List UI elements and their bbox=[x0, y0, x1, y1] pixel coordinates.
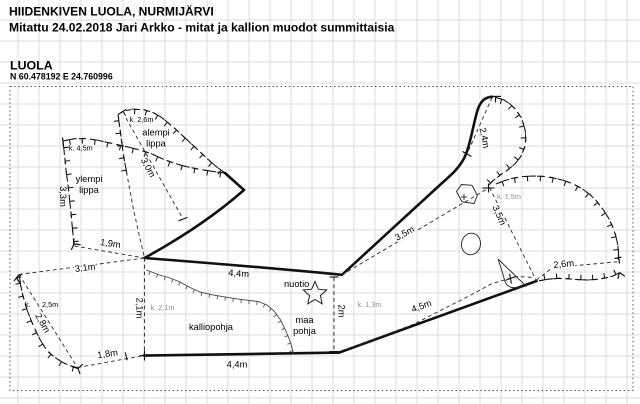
svg-text:alempi: alempi bbox=[142, 127, 169, 137]
svg-text:lippa: lippa bbox=[79, 185, 99, 195]
svg-text:nuotio: nuotio bbox=[284, 279, 309, 289]
svg-text:HIIDENKIVEN LUOLA, NURMIJÄRVI: HIIDENKIVEN LUOLA, NURMIJÄRVI bbox=[9, 4, 214, 19]
svg-text:maa: maa bbox=[295, 315, 314, 325]
svg-text:k. 2,6m: k. 2,6m bbox=[130, 115, 154, 124]
svg-text:pohja: pohja bbox=[293, 326, 317, 336]
svg-text:k. 2,1m: k. 2,1m bbox=[151, 303, 175, 312]
svg-text:4,4m: 4,4m bbox=[228, 268, 250, 279]
svg-text:kalliopohja: kalliopohja bbox=[189, 322, 234, 332]
svg-text:2m: 2m bbox=[337, 305, 347, 318]
svg-text:2,5m: 2,5m bbox=[42, 300, 58, 309]
svg-text:3,3m: 3,3m bbox=[58, 186, 68, 207]
svg-text:4,4m: 4,4m bbox=[227, 360, 248, 370]
svg-text:ylempi: ylempi bbox=[76, 174, 103, 184]
svg-text:LUOLA: LUOLA bbox=[10, 59, 53, 73]
svg-text:2,1m: 2,1m bbox=[135, 298, 145, 319]
svg-text:lippa: lippa bbox=[146, 138, 166, 148]
svg-text:N 60.478192 E 24.760996: N 60.478192 E 24.760996 bbox=[10, 72, 113, 82]
svg-text:Mitattu 24.02.2018 Jari Arkko: Mitattu 24.02.2018 Jari Arkko - mitat ja… bbox=[9, 21, 395, 35]
svg-text:k.: k. bbox=[25, 300, 31, 309]
svg-text:k. 1,5m: k. 1,5m bbox=[497, 192, 521, 201]
svg-text:k. 1,3m: k. 1,3m bbox=[358, 300, 382, 309]
svg-text:k. 4,5m: k. 4,5m bbox=[69, 144, 93, 153]
